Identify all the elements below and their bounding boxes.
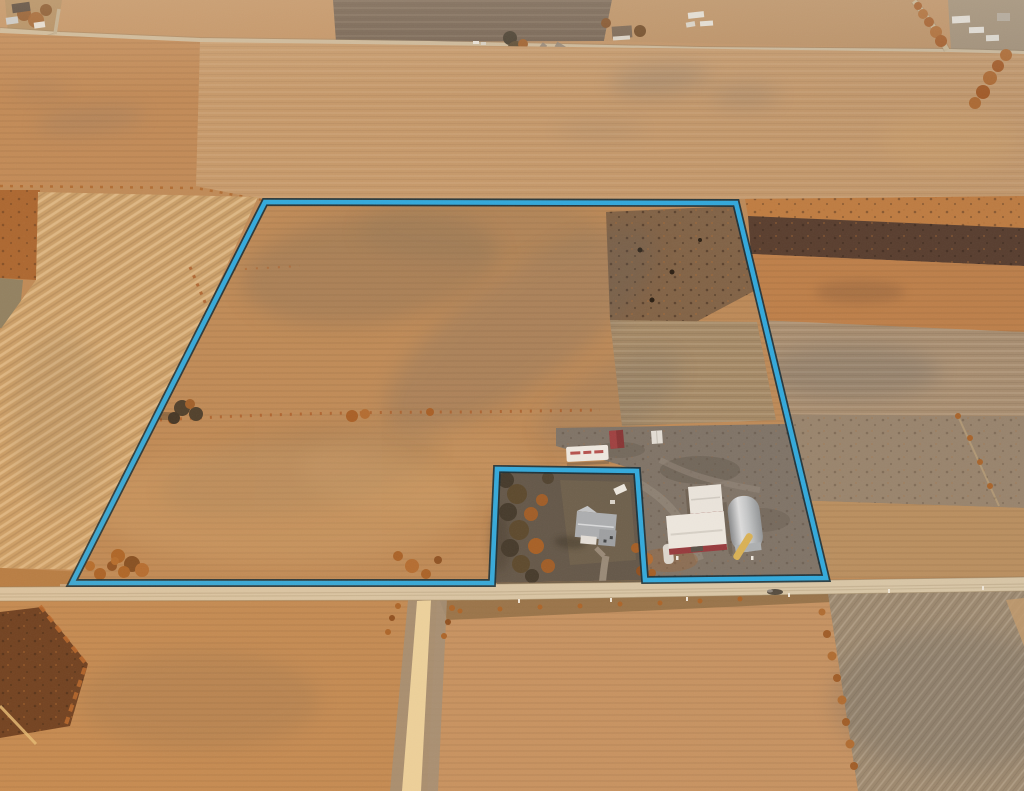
photo-grain xyxy=(0,0,1024,791)
aerial-photo-canvas xyxy=(0,0,1024,791)
aerial-photo xyxy=(0,0,1024,791)
